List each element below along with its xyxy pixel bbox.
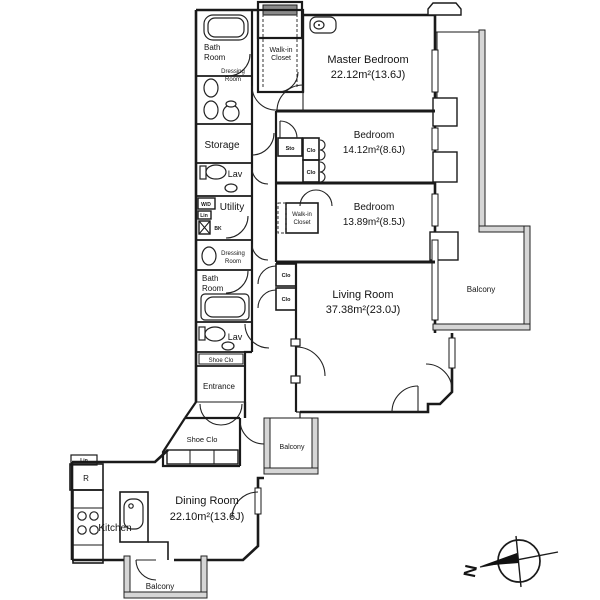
utility-room: W/D Lin BK Utility [198,198,248,238]
dressing-top-label-2: Room [225,77,241,83]
kitchen-label: Kitchen [98,523,131,534]
wic2-label-1: Walk-in [292,212,312,218]
clo-label-1: Clo [307,148,317,154]
balcony-bottom-label: Balcony [146,582,174,591]
living-room-label: Living Room [332,289,393,301]
dressing-low-label-1: Dressing [221,251,245,257]
bath-top-label-2: Room [204,53,226,62]
compass-north-label: N [460,563,481,579]
balcony-middle: Balcony [264,418,318,474]
refrigerator-label: R [83,474,89,483]
entrance-label: Entrance [203,382,236,391]
storage-label: Storage [204,140,239,151]
wic-top-label-2: Closet [271,55,291,62]
bath-room-top: Bath Room [204,15,250,76]
roof-bump [428,3,461,15]
kitchen: Kitchen R Lin [70,455,168,563]
dining-room-area: 22.10m²(13.6J) [170,511,245,523]
compass: N [460,536,558,587]
shoe-clo-strip-label: Shoe Clo [209,358,234,364]
clo-label-2: Clo [307,170,317,176]
bath-low-label-2: Room [202,284,224,293]
bedroom-mid-label: Bedroom [354,130,395,141]
balcony-right-label: Balcony [467,285,495,294]
linen-label: Lin [80,458,88,464]
lav-low-label: Lav [228,332,243,342]
sto-label: Sto [286,146,296,152]
clo-label-3: Clo [282,273,292,279]
lav-low: Lav [199,324,269,350]
shoe-closet-room: Shoe Clo [163,402,264,466]
bath-room-low: Bath Room [201,271,249,320]
service-box-1 [433,98,457,126]
clo-label-4: Clo [282,297,292,303]
living-room: Clo Clo Living Room 37.38m²(23.0J) [258,264,452,412]
floor-plan-canvas: Balcony Walk-in C [0,0,600,600]
bk-label: BK [214,226,222,232]
dressing-room-low: Dressing Room [202,244,268,265]
bath-low-label-1: Bath [202,274,218,283]
balcony-right: Balcony [430,30,530,330]
wd-label: W/D [201,202,211,208]
dressing-low-label-2: Room [225,259,241,265]
utility-label: Utility [220,202,244,213]
service-box-2 [433,152,457,182]
master-bedroom-area: 22.12m²(13.6J) [331,69,406,81]
balcony-bottom: Balcony [124,556,207,598]
lin-label: Lin [200,213,208,219]
bedroom-low-label: Bedroom [354,202,395,213]
bedroom-lower: Walk-in Closet Bedroom 13.89m²(8.5J) [278,190,405,233]
shoe-clo-room-label: Shoe Clo [187,435,218,444]
floor-plan-drawing: Balcony Walk-in C [0,0,600,600]
bath-top-label-1: Bath [204,43,220,52]
dining-room-label: Dining Room [175,495,239,507]
compass-needle [481,553,519,566]
shoe-closet-strip: Shoe Clo [199,354,243,364]
storage-room: Storage [204,133,274,155]
lav-top: Lav [200,165,268,192]
bedroom-middle: Sto Clo Clo Bedroom 14.12m²(8.6J) [278,121,405,182]
balcony-middle-label: Balcony [280,444,305,451]
master-bedroom-label: Master Bedroom [327,54,408,66]
lav-top-label: Lav [228,169,243,179]
bedroom-low-area: 13.89m²(8.5J) [343,217,405,228]
bedroom-mid-area: 14.12m²(8.6J) [343,145,405,156]
wic2-label-2: Closet [293,220,310,226]
wic-top-label-1: Walk-in [269,47,292,54]
living-room-area: 37.38m²(23.0J) [326,304,401,316]
dressing-top-label-1: Dressing [221,69,245,75]
